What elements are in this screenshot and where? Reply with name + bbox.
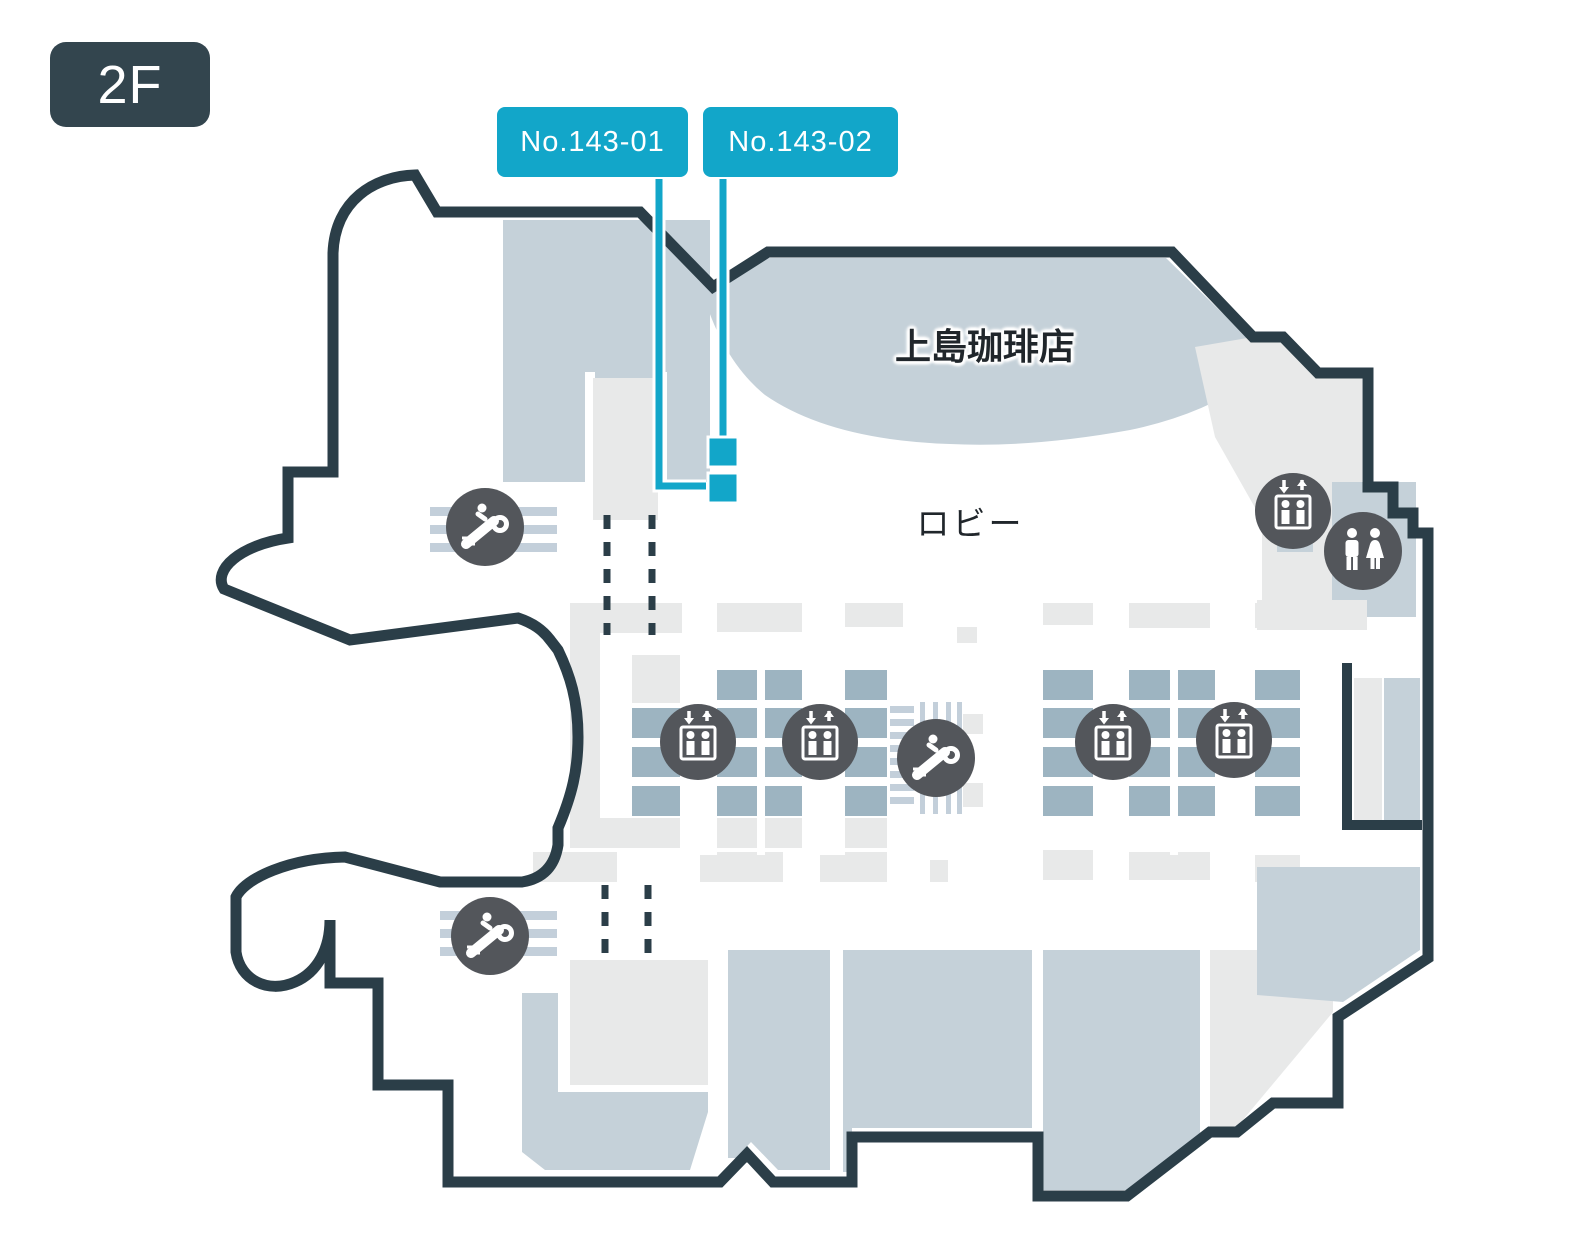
elevator-icon [1075,704,1151,780]
floor-plan-svg [0,0,1575,1260]
elevator-icon [1255,473,1331,549]
elevator-icon [782,704,858,780]
unit-label-143-02[interactable]: No.143-02 [703,107,898,177]
lobby-label: ロビー [898,497,1043,545]
unit-label-text: No.143-01 [520,126,664,159]
coffee-shop-label: 上島珈琲店 [860,318,1110,370]
elevator-icon [660,704,736,780]
space-marker-143-02[interactable] [708,437,738,467]
space-marker-143-01[interactable] [708,473,738,503]
unit-label-143-01[interactable]: No.143-01 [497,107,688,177]
unit-label-text: No.143-02 [728,126,872,159]
floor-badge: 2F [50,42,210,127]
floor-map-2f: 2F No.143-01 No.143-02 上島珈琲店 ロビー [0,0,1575,1260]
restroom-icon [1324,512,1402,590]
escalator-icon [451,897,529,975]
floor-badge-label: 2F [97,54,162,116]
escalator-icon [897,719,975,797]
elevator-icon [1196,702,1272,778]
escalator-icon [446,488,524,566]
bottom-gray-block [570,960,708,1085]
